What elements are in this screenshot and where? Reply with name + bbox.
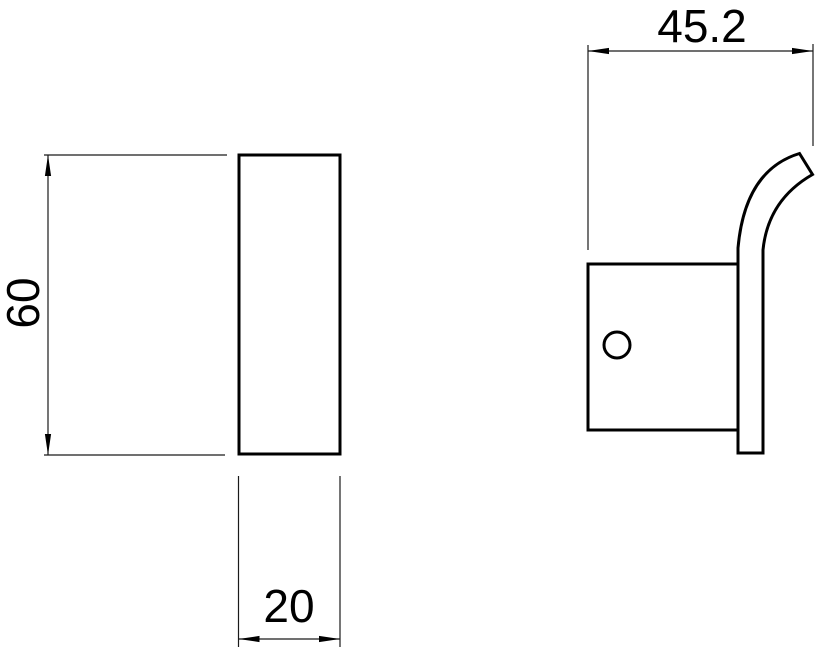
technical-drawing-canvas: 60 20 45.2 [0, 0, 820, 648]
screw-hole [604, 332, 630, 358]
width-dimension-label: 20 [263, 580, 314, 632]
height-dimension-label: 60 [0, 277, 49, 328]
depth-dimension-label: 45.2 [657, 0, 747, 52]
front-view [239, 155, 340, 454]
front-view-outline [239, 155, 340, 454]
